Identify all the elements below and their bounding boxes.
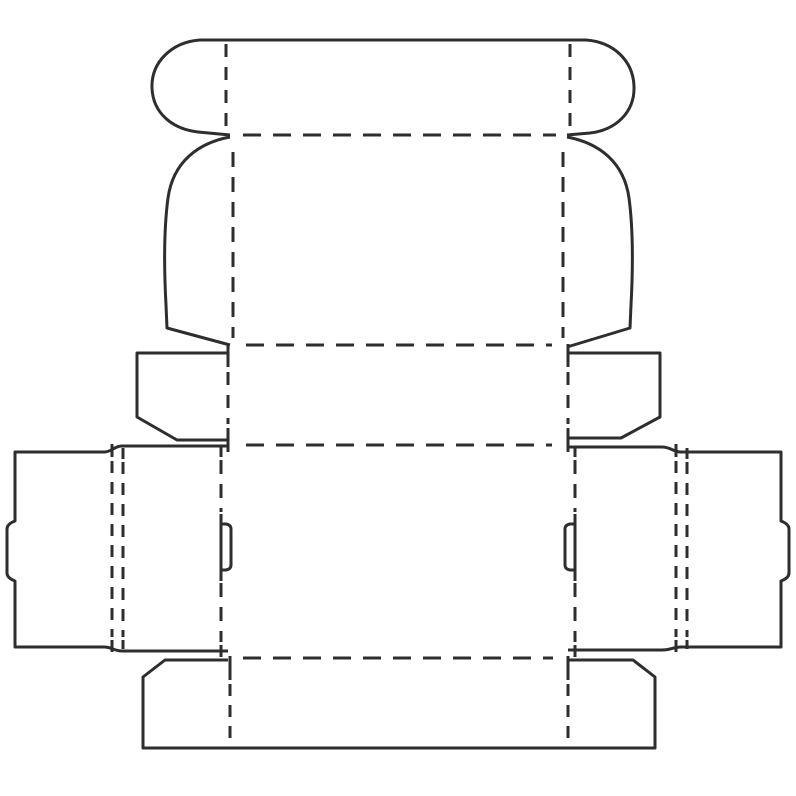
carton-box-dieline xyxy=(0,0,796,796)
right-lock-slit xyxy=(565,514,575,581)
right-glue-flap-outline xyxy=(690,452,789,647)
left-glue-flap-outline xyxy=(7,452,105,647)
right-dust-flap-outline xyxy=(568,353,660,438)
left-dust-flap-outline xyxy=(137,353,228,440)
dieline-stage xyxy=(0,0,796,796)
bottom-fold-solid-starts xyxy=(230,656,568,680)
left-glue-fold-solid-tips xyxy=(112,444,123,652)
right-wing-bottom-edge xyxy=(568,647,691,650)
lid-panel-right-curve xyxy=(567,137,632,347)
bottom-flap-outline xyxy=(143,660,655,748)
left-lock-slit xyxy=(221,514,231,581)
tuck-flap-outline xyxy=(152,40,634,135)
right-wing-top-edge xyxy=(568,447,691,452)
lid-panel-left-curve xyxy=(165,137,230,345)
right-glue-fold-solid-tips xyxy=(676,444,687,652)
